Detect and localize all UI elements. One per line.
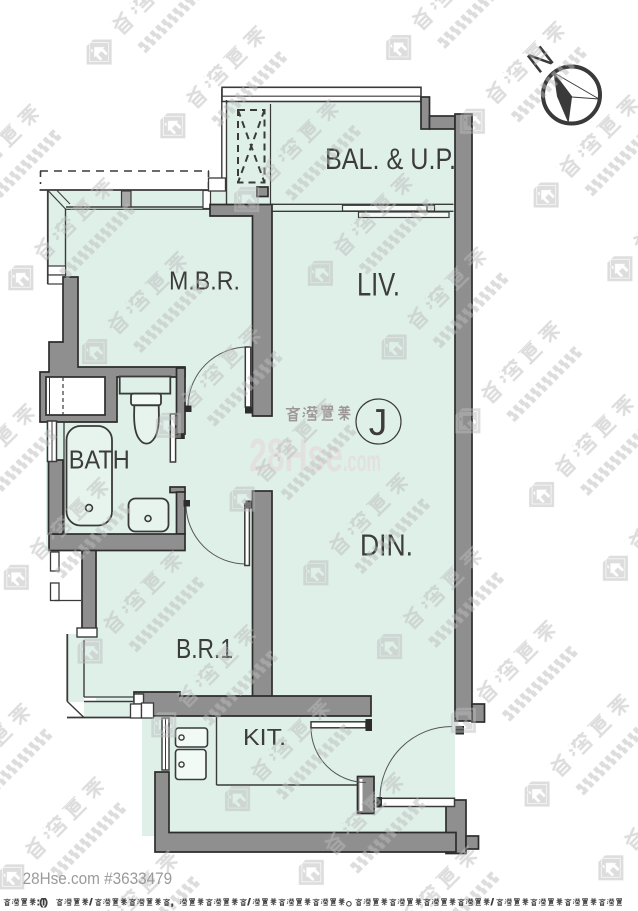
svg-text:,: , [171,897,174,907]
svg-text::(i): :(i) [37,897,48,907]
svg-text:28Hse.com #3633479: 28Hse.com #3633479 [23,870,173,888]
